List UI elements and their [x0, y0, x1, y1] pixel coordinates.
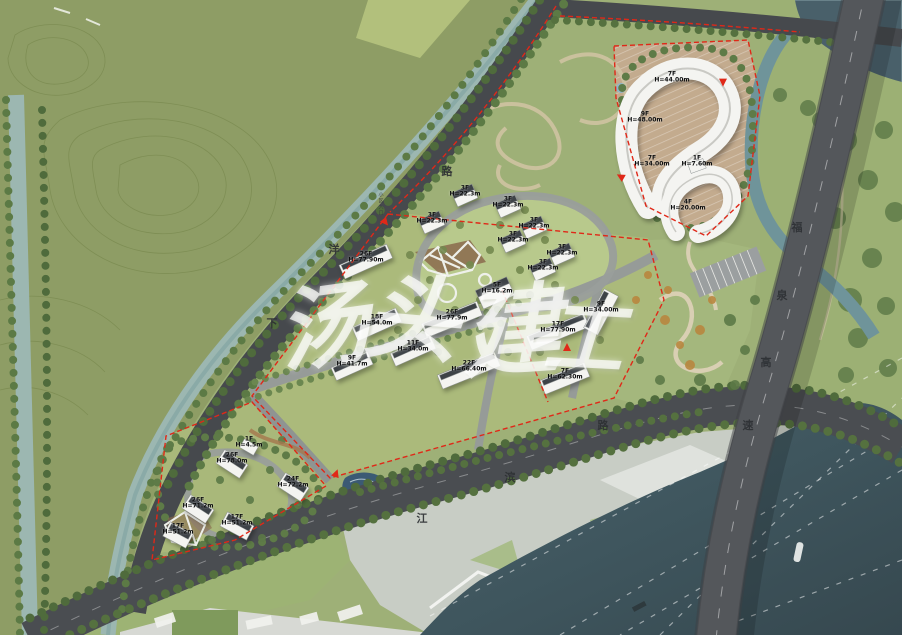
basemap-rendering	[0, 0, 902, 635]
site-plan-canvas: 汤头建工下洋路江滨路福泉高速7FH=44.00m9FH=48.00m7FH=34…	[0, 0, 902, 635]
